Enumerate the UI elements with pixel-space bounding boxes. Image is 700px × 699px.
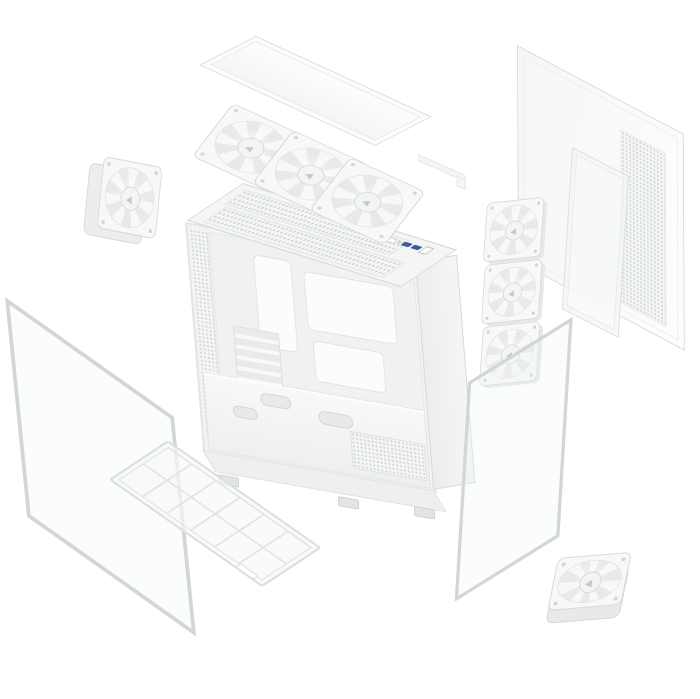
rear-exhaust-fan <box>97 156 163 239</box>
brand-triangle-icon <box>245 144 256 152</box>
side-panel-vent-strip <box>620 129 666 327</box>
fan-screws <box>107 162 111 167</box>
cable-grommet <box>318 410 354 430</box>
bracket-tab <box>457 175 466 190</box>
brand-triangle-icon <box>508 289 516 297</box>
side-filter-mesh <box>567 154 624 330</box>
brand-triangle-icon <box>510 227 518 235</box>
brand-triangle-icon <box>362 198 373 206</box>
side-fan <box>483 197 545 263</box>
fan-screws <box>293 135 299 139</box>
side-dust-filter <box>562 147 629 338</box>
fan-screws <box>490 206 493 210</box>
exploded-pc-case-render <box>0 0 700 699</box>
case-foot <box>338 496 359 510</box>
bottom-fan <box>547 552 632 611</box>
brand-triangle-icon <box>126 194 135 204</box>
cable-cutout <box>312 340 386 394</box>
brand-triangle-icon <box>585 578 596 587</box>
mounting-bracket <box>418 154 465 182</box>
side-fan <box>481 259 543 325</box>
fan-screws <box>561 562 566 566</box>
psu-vent <box>350 431 428 481</box>
glass-side-panel <box>455 317 573 602</box>
cable-grommet <box>260 392 292 410</box>
fan-screws <box>233 108 239 112</box>
fan-screws <box>486 330 489 334</box>
fan-screws <box>350 162 356 166</box>
brand-triangle-icon <box>305 171 316 179</box>
cable-grommet <box>233 405 259 421</box>
fan-screws <box>488 268 491 272</box>
